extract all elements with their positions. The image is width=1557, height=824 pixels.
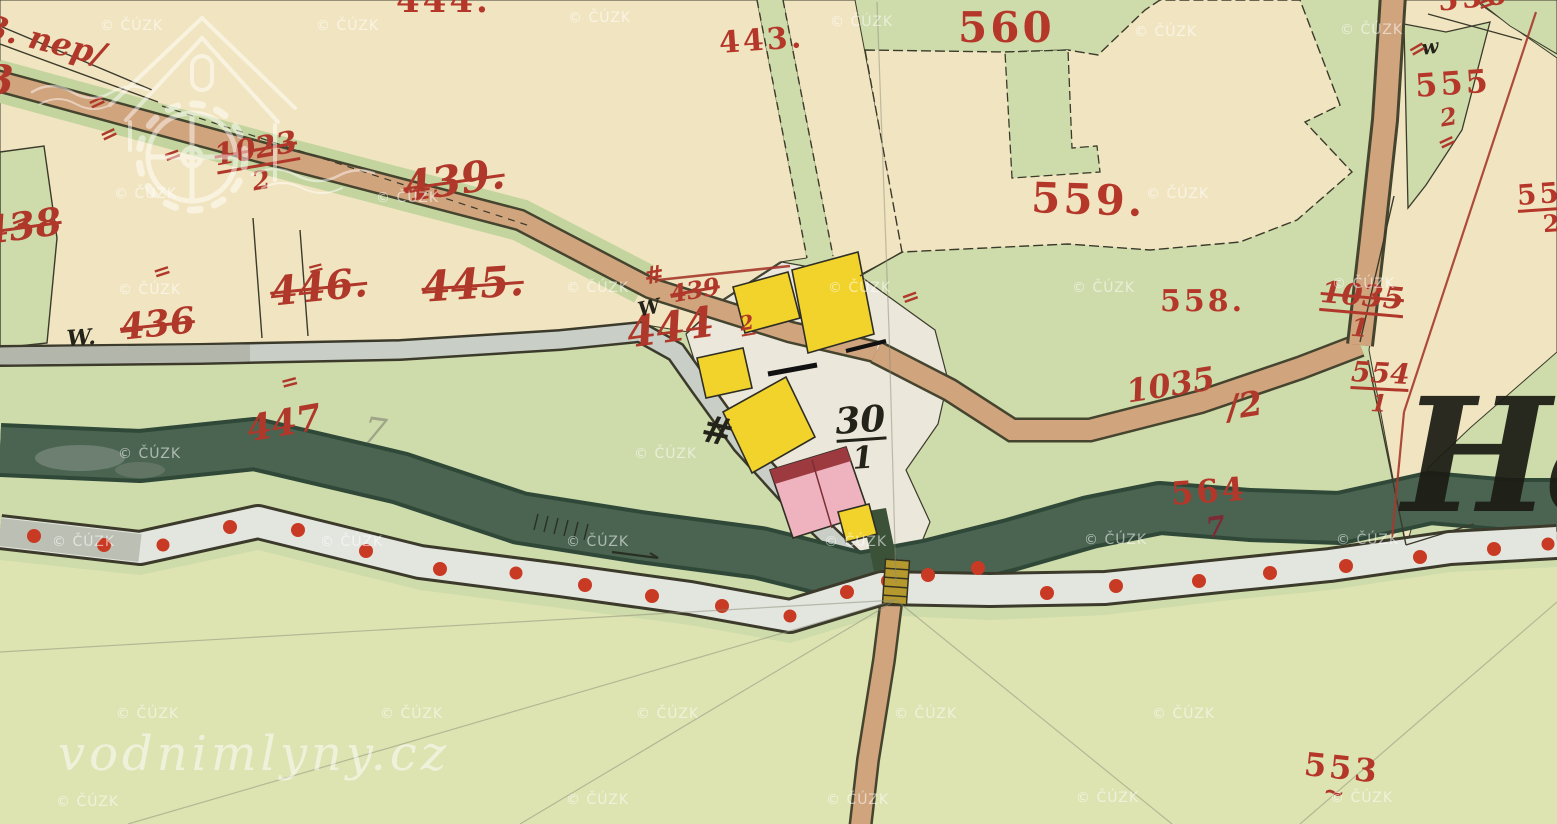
logo-site-name: vodnimlyny.cz xyxy=(58,726,450,782)
watermill-house-icon xyxy=(0,0,420,290)
place-name-blackletter: Ha xyxy=(1402,364,1557,549)
yellow-building xyxy=(792,252,874,353)
yellow-building xyxy=(697,348,752,398)
cadastral-map: Ha 444.443.560559.558.5647553~5565552555… xyxy=(0,0,1557,824)
yellow-building xyxy=(838,504,877,542)
